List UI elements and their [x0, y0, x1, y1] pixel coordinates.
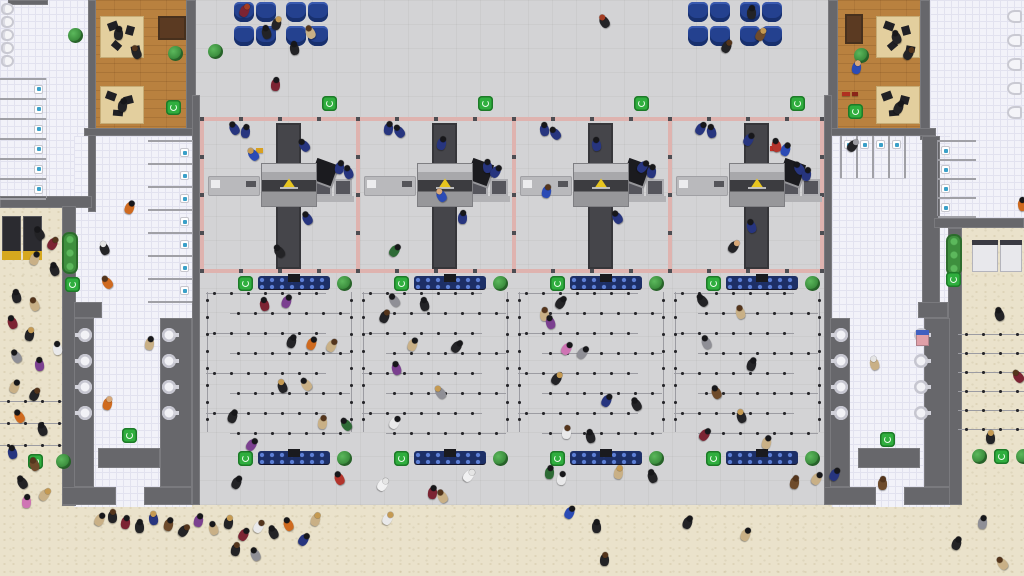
toilet[interactable] — [34, 125, 43, 134]
passenger[interactable] — [1017, 198, 1024, 211]
toilet[interactable] — [34, 145, 43, 154]
toilet[interactable] — [180, 217, 189, 226]
queue-divider[interactable] — [542, 432, 662, 435]
passenger[interactable] — [207, 522, 219, 536]
queue-divider[interactable] — [386, 432, 506, 435]
queue-divider[interactable] — [386, 312, 506, 315]
waiting-seat[interactable] — [688, 26, 708, 46]
queue-bench[interactable] — [414, 276, 486, 289]
person-head — [783, 141, 791, 149]
xray-scanner[interactable] — [574, 164, 628, 206]
passenger[interactable] — [600, 554, 609, 566]
water-fountain[interactable] — [78, 380, 92, 394]
toilet[interactable] — [180, 263, 189, 272]
person-head — [592, 137, 599, 144]
queue-divider[interactable] — [362, 292, 482, 295]
wall — [88, 0, 96, 212]
water-fountain[interactable] — [162, 328, 176, 342]
toilet[interactable] — [892, 140, 901, 149]
wall-stud — [512, 231, 516, 235]
person-head — [13, 378, 21, 386]
passenger[interactable] — [381, 512, 395, 527]
plant[interactable] — [56, 454, 71, 469]
queue-divider[interactable] — [698, 352, 818, 355]
plant[interactable] — [972, 449, 987, 464]
urinal[interactable] — [1, 29, 14, 41]
queue-divider[interactable] — [206, 292, 326, 295]
plant[interactable] — [649, 276, 664, 291]
tray-return-bin[interactable] — [490, 179, 508, 196]
wall — [144, 487, 192, 505]
trash-bin[interactable] — [166, 100, 181, 115]
queue-divider[interactable] — [958, 333, 1024, 336]
queue-divider[interactable] — [958, 409, 1024, 412]
water-fountain[interactable] — [834, 406, 848, 420]
queue-divider[interactable] — [206, 372, 326, 375]
passenger[interactable] — [15, 476, 29, 491]
passenger[interactable] — [46, 237, 60, 252]
wall-toilet[interactable] — [1007, 58, 1022, 71]
person-head — [274, 15, 282, 23]
queue-divider[interactable] — [542, 352, 662, 355]
passenger[interactable] — [6, 316, 19, 331]
luggage[interactable] — [852, 92, 858, 96]
toilet[interactable] — [180, 148, 189, 157]
person-head — [310, 335, 318, 343]
wall — [98, 448, 160, 468]
toilet[interactable] — [34, 165, 43, 174]
trash-bin[interactable] — [238, 276, 253, 291]
toilet[interactable] — [941, 184, 950, 193]
person-head — [749, 356, 756, 363]
queue-divider[interactable] — [386, 352, 506, 355]
wall-toilet[interactable] — [1007, 10, 1022, 23]
plant[interactable] — [649, 451, 664, 466]
wall-stud — [512, 269, 516, 273]
toilet-stall-wall — [938, 197, 976, 199]
queue-divider[interactable] — [362, 332, 482, 335]
toilet-stall-wall — [938, 216, 976, 218]
wall-stud — [278, 269, 282, 273]
wall-stud — [317, 117, 321, 121]
passenger[interactable] — [739, 528, 752, 543]
passenger[interactable] — [108, 511, 117, 523]
person-head — [24, 494, 30, 500]
urinal[interactable] — [1, 3, 14, 15]
waiting-seat[interactable] — [688, 2, 708, 22]
person-head — [246, 147, 254, 155]
waiting-seat[interactable] — [762, 2, 782, 22]
person-head — [420, 297, 427, 304]
person-head — [725, 39, 733, 47]
person-head — [735, 304, 742, 311]
passenger[interactable] — [93, 513, 106, 528]
queue-divider[interactable] — [362, 412, 482, 415]
person-head — [12, 289, 19, 296]
queue-divider[interactable] — [542, 392, 662, 395]
person-head — [439, 136, 446, 143]
queue-bench[interactable] — [726, 276, 798, 289]
trash-bin[interactable] — [880, 432, 895, 447]
passenger[interactable] — [114, 28, 123, 40]
toilet[interactable] — [876, 140, 885, 149]
queue-divider[interactable] — [958, 390, 1024, 393]
passenger[interactable] — [120, 516, 131, 529]
wall-stud — [551, 117, 555, 121]
passenger[interactable] — [193, 514, 204, 528]
person-head — [541, 307, 547, 313]
queue-divider[interactable] — [518, 372, 638, 375]
planter[interactable] — [62, 232, 78, 274]
person-head — [593, 519, 599, 525]
queue-bench[interactable] — [570, 276, 642, 289]
water-fountain[interactable] — [162, 380, 176, 394]
queue-divider[interactable] — [206, 332, 326, 335]
wall-stud — [590, 117, 594, 121]
trash-bin[interactable] — [706, 451, 721, 466]
person-head — [299, 377, 307, 385]
trash-bin[interactable] — [706, 276, 721, 291]
toilet-stall-wall — [148, 255, 192, 257]
person-head — [540, 122, 547, 129]
queue-divider[interactable] — [518, 292, 521, 432]
wall — [920, 0, 930, 140]
toilet[interactable] — [941, 146, 950, 155]
water-fountain[interactable] — [162, 406, 176, 420]
trash-bin[interactable] — [394, 276, 409, 291]
passenger[interactable] — [681, 516, 694, 530]
urinal[interactable] — [1, 55, 14, 67]
queue-divider[interactable] — [506, 292, 509, 432]
waiting-seat[interactable] — [308, 2, 328, 22]
passenger[interactable] — [878, 478, 887, 490]
wall-stud — [200, 231, 204, 235]
passenger[interactable] — [230, 543, 241, 556]
passenger[interactable] — [28, 298, 41, 313]
person-head — [29, 296, 37, 304]
water-fountain[interactable] — [914, 406, 928, 420]
trash-bin[interactable] — [550, 276, 565, 291]
toilet[interactable] — [941, 203, 950, 212]
passenger[interactable] — [48, 263, 60, 277]
queue-divider[interactable] — [674, 412, 794, 415]
water-fountain[interactable] — [834, 380, 848, 394]
bag-search-desk[interactable] — [676, 176, 728, 196]
person-head — [987, 430, 993, 436]
toilet[interactable] — [180, 240, 189, 249]
passenger[interactable] — [267, 526, 280, 541]
wall-stud — [820, 155, 824, 159]
urinal[interactable] — [1, 16, 14, 28]
plant[interactable] — [337, 451, 352, 466]
vending-machine[interactable] — [972, 240, 998, 272]
waiting-seat[interactable] — [234, 26, 254, 46]
queue-divider[interactable] — [662, 292, 665, 432]
passenger[interactable] — [24, 328, 35, 342]
security-officer[interactable] — [458, 212, 467, 224]
queue-bench[interactable] — [726, 451, 798, 464]
toilet-stall-wall — [148, 278, 192, 280]
wall-stud — [551, 269, 555, 273]
queue-divider[interactable] — [674, 332, 794, 335]
passenger[interactable] — [223, 516, 234, 529]
wall-toilet[interactable] — [1007, 34, 1022, 47]
toilet[interactable] — [34, 105, 43, 114]
person-head — [568, 504, 576, 512]
trash-bin[interactable] — [994, 449, 1009, 464]
queue-divider[interactable] — [818, 292, 821, 432]
bag-search-desk[interactable] — [364, 176, 416, 196]
person-head — [337, 160, 344, 167]
passenger[interactable] — [176, 524, 190, 539]
toilet-stall-wall — [0, 178, 46, 180]
person-head — [545, 314, 552, 321]
queue-divider[interactable] — [958, 352, 1024, 355]
trash-bin[interactable] — [322, 96, 337, 111]
person-head — [980, 515, 987, 522]
queue-divider[interactable] — [698, 312, 818, 315]
queue-bench[interactable] — [414, 451, 486, 464]
tray-shelf[interactable] — [622, 196, 666, 202]
passenger[interactable] — [986, 432, 995, 444]
person-head — [386, 511, 394, 519]
queue-divider[interactable] — [542, 312, 662, 315]
passenger[interactable] — [34, 358, 45, 371]
wall — [84, 128, 196, 136]
plant[interactable] — [805, 451, 820, 466]
tray-shelf[interactable] — [310, 196, 354, 202]
wall-stud — [278, 117, 282, 121]
tray-return-bin[interactable] — [646, 179, 664, 196]
person-head — [32, 250, 40, 258]
trash-bin[interactable] — [478, 96, 493, 111]
person-head — [771, 137, 778, 144]
water-fountain[interactable] — [78, 328, 92, 342]
xray-scanner[interactable] — [262, 164, 316, 206]
wall-stud — [707, 117, 711, 121]
queue-divider[interactable] — [362, 372, 482, 375]
person-head — [147, 336, 154, 343]
vending-machine[interactable] — [916, 330, 929, 346]
person-head — [208, 520, 216, 528]
queue-divider[interactable] — [206, 412, 326, 415]
passenger[interactable] — [977, 516, 987, 529]
tray-shelf[interactable] — [778, 196, 822, 202]
water-fountain[interactable] — [914, 354, 928, 368]
plant[interactable] — [168, 46, 183, 61]
wall-stud — [820, 269, 824, 273]
tray-return-bin[interactable] — [334, 179, 352, 196]
passenger[interactable] — [563, 506, 576, 521]
wall-toilet[interactable] — [1007, 106, 1022, 119]
toilet-stall-wall — [840, 136, 842, 178]
passenger[interactable] — [271, 79, 281, 92]
queue-divider[interactable] — [362, 292, 365, 432]
passenger[interactable] — [995, 557, 1010, 572]
tray-return-bin[interactable] — [802, 179, 820, 196]
passenger[interactable] — [9, 350, 23, 365]
wall-stud — [629, 117, 633, 121]
wall — [830, 318, 850, 487]
queue-divider[interactable] — [230, 352, 350, 355]
passenger[interactable] — [163, 518, 175, 532]
queue-divider[interactable] — [698, 432, 818, 435]
queue-divider[interactable] — [0, 422, 62, 425]
plant[interactable] — [208, 44, 223, 59]
person-head — [833, 467, 841, 475]
passenger[interactable] — [993, 308, 1005, 322]
trash-bin[interactable] — [238, 451, 253, 466]
toilet[interactable] — [860, 140, 869, 149]
passenger[interactable] — [148, 512, 159, 525]
person-head — [105, 395, 112, 402]
wall-stud — [239, 117, 243, 121]
bag-search-desk[interactable] — [208, 176, 260, 196]
wall-stud — [200, 269, 204, 273]
queue-divider[interactable] — [230, 312, 350, 315]
passenger[interactable] — [37, 488, 51, 503]
person-head — [764, 434, 771, 441]
passenger[interactable] — [950, 537, 962, 551]
plant[interactable] — [493, 276, 508, 291]
toilet[interactable] — [34, 85, 43, 94]
trash-bin[interactable] — [550, 451, 565, 466]
planter[interactable] — [946, 234, 962, 276]
water-fountain[interactable] — [78, 406, 92, 420]
wall-stud — [473, 269, 477, 273]
person-head — [749, 5, 755, 11]
person-head — [284, 293, 292, 301]
queue-divider[interactable] — [674, 292, 794, 295]
wall-stud — [785, 269, 789, 273]
passenger[interactable] — [22, 496, 31, 508]
person-head — [1019, 197, 1024, 204]
queue-bench[interactable] — [570, 451, 642, 464]
wall-toilet[interactable] — [1007, 82, 1022, 95]
person-head — [242, 527, 250, 535]
water-fountain[interactable] — [78, 354, 92, 368]
person-head — [1011, 369, 1019, 377]
person-head — [243, 2, 251, 10]
wall-stud — [395, 269, 399, 273]
passenger[interactable] — [296, 533, 310, 548]
trash-bin[interactable] — [394, 451, 409, 466]
person-head — [391, 360, 398, 367]
trash-bin[interactable] — [122, 428, 137, 443]
waiting-seat[interactable] — [710, 2, 730, 22]
plant[interactable] — [493, 451, 508, 466]
toilet[interactable] — [180, 194, 189, 203]
passenger[interactable] — [249, 548, 262, 563]
water-fountain[interactable] — [914, 380, 928, 394]
wall-stud — [668, 155, 672, 159]
toilet[interactable] — [180, 286, 189, 295]
person-head — [559, 471, 566, 478]
luggage[interactable] — [842, 92, 850, 96]
person-head — [51, 236, 59, 244]
vending-machine[interactable] — [2, 216, 21, 260]
passenger[interactable] — [7, 446, 18, 460]
person-head — [586, 428, 593, 435]
plant[interactable] — [337, 276, 352, 291]
trash-bin[interactable] — [848, 104, 863, 119]
toilet-stall-wall — [937, 140, 938, 216]
toilet-stall-wall — [0, 138, 46, 140]
wall-stud — [785, 117, 789, 121]
queue-divider[interactable] — [674, 292, 677, 432]
passenger[interactable] — [747, 7, 756, 19]
person-head — [136, 519, 142, 525]
queue-divider[interactable] — [350, 292, 353, 432]
queue-bench[interactable] — [258, 276, 330, 289]
toilet-stall-wall — [904, 136, 906, 178]
office-bench[interactable] — [158, 16, 186, 40]
passenger[interactable] — [135, 521, 144, 533]
toilet[interactable] — [34, 185, 43, 194]
queue-bench[interactable] — [258, 451, 330, 464]
plant[interactable] — [805, 276, 820, 291]
passenger[interactable] — [282, 518, 295, 533]
toilet-stall-wall — [0, 158, 46, 160]
passenger[interactable] — [252, 520, 266, 535]
toilet-stall-wall — [938, 178, 976, 180]
queue-divider[interactable] — [230, 392, 350, 395]
queue-divider[interactable] — [518, 292, 638, 295]
water-fountain[interactable] — [834, 328, 848, 342]
water-fountain[interactable] — [834, 354, 848, 368]
person-head — [854, 60, 861, 67]
wall-stud — [473, 117, 477, 121]
passenger[interactable] — [11, 290, 22, 304]
person-head — [995, 556, 1003, 564]
person-head — [35, 357, 42, 364]
office-bench[interactable] — [845, 14, 863, 44]
trash-bin[interactable] — [634, 96, 649, 111]
water-fountain[interactable] — [162, 354, 176, 368]
trash-bin[interactable] — [946, 272, 961, 287]
xray-scanner[interactable] — [730, 164, 784, 206]
urinal[interactable] — [1, 42, 14, 54]
passenger[interactable] — [8, 380, 21, 395]
queue-divider[interactable] — [230, 432, 350, 435]
trash-bin[interactable] — [790, 96, 805, 111]
waiting-seat[interactable] — [286, 2, 306, 22]
toilet[interactable] — [941, 165, 950, 174]
plant[interactable] — [68, 28, 83, 43]
plant[interactable] — [1016, 449, 1024, 464]
person-head — [116, 26, 122, 32]
queue-divider[interactable] — [206, 292, 209, 432]
queue-divider[interactable] — [518, 332, 638, 335]
passenger[interactable] — [237, 528, 251, 543]
person-head — [13, 409, 21, 417]
person-head — [235, 474, 243, 482]
vending-machine[interactable] — [1000, 240, 1022, 272]
passenger[interactable] — [592, 521, 602, 533]
tray-shelf[interactable] — [466, 196, 510, 202]
toilet[interactable] — [180, 171, 189, 180]
person-head — [16, 475, 24, 483]
wall — [824, 128, 936, 136]
person-head — [386, 121, 393, 128]
queue-divider[interactable] — [518, 412, 638, 415]
trash-bin[interactable] — [65, 277, 80, 292]
wall-stud — [668, 193, 672, 197]
wall-stud — [317, 269, 321, 273]
passenger[interactable] — [309, 513, 321, 527]
queue-divider[interactable] — [674, 372, 794, 375]
person-head — [123, 515, 130, 522]
